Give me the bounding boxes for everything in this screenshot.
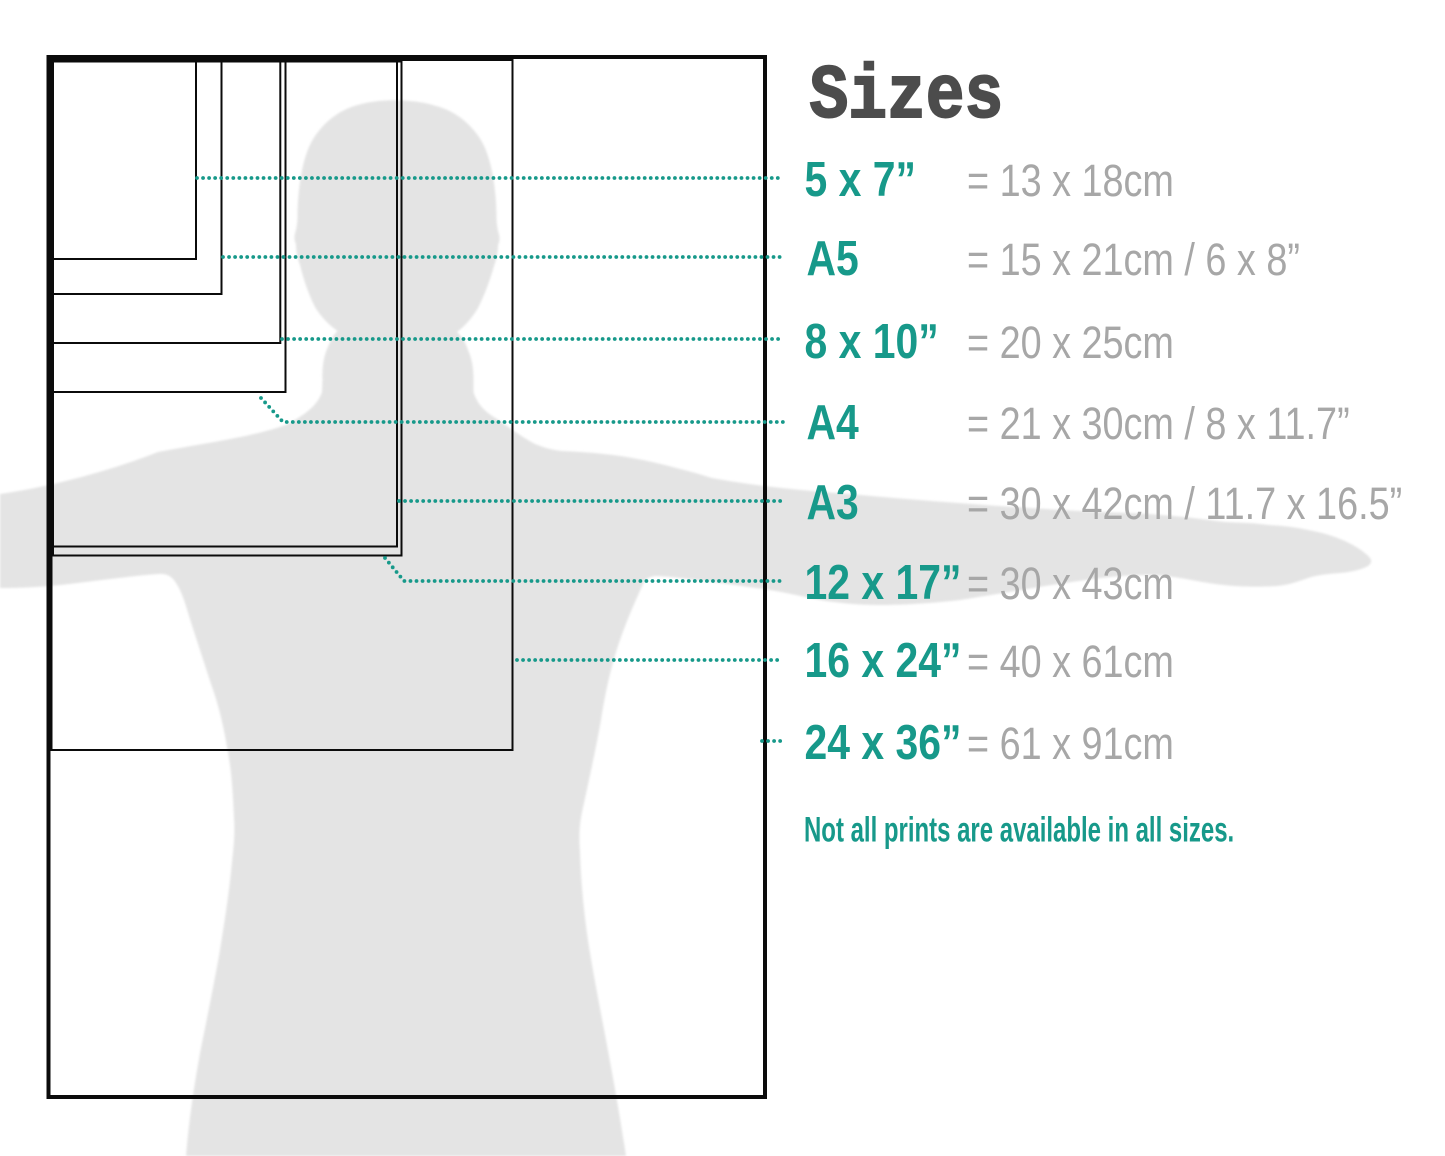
svg-text:A5: A5: [807, 230, 859, 285]
svg-text:Not all prints are available i: Not all prints are available in all size…: [804, 811, 1234, 850]
svg-text:24 x 36”: 24 x 36”: [805, 714, 962, 769]
svg-text:12 x 17”: 12 x 17”: [805, 554, 962, 609]
svg-text:Sizes: Sizes: [810, 55, 1004, 141]
svg-text:= 15 x 21cm / 6 x 8”: = 15 x 21cm / 6 x 8”: [967, 234, 1300, 285]
svg-text:= 61 x 91cm: = 61 x 91cm: [967, 718, 1174, 769]
svg-text:= 13 x 18cm: = 13 x 18cm: [967, 155, 1174, 206]
svg-text:A3: A3: [807, 474, 859, 529]
svg-text:8 x 10”: 8 x 10”: [805, 313, 939, 368]
svg-text:= 30 x 42cm / 11.7 x 16.5”: = 30 x 42cm / 11.7 x 16.5”: [967, 478, 1402, 529]
svg-text:= 40 x 61cm: = 40 x 61cm: [967, 636, 1174, 687]
svg-text:5 x 7”: 5 x 7”: [805, 151, 916, 206]
svg-text:= 30 x 43cm: = 30 x 43cm: [967, 558, 1174, 609]
svg-text:= 20 x 25cm: = 20 x 25cm: [967, 317, 1174, 368]
svg-text:16 x 24”: 16 x 24”: [805, 632, 962, 687]
svg-text:A4: A4: [807, 394, 859, 449]
svg-text:= 21 x 30cm / 8 x 11.7”: = 21 x 30cm / 8 x 11.7”: [967, 398, 1350, 449]
